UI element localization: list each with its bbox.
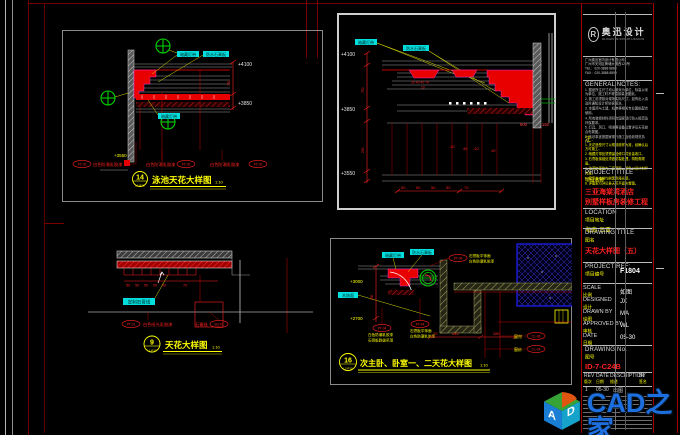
fold-mark: [44, 223, 64, 224]
svg-text:石膏线: 石膏线: [195, 321, 208, 328]
svg-text:白色防潮乳胶漆: 白色防潮乳胶漆: [368, 332, 394, 337]
project-title-line1: 三亚海棠湾酒店: [585, 187, 650, 197]
panel-pool-ceiling-detail: 750 +4100 +3850 +3550 暗藏灯带 防水石膏板 暗藏灯带 PT…: [62, 30, 323, 202]
svg-text:50: 50: [126, 284, 130, 288]
svg-text:SG-01: SG-01: [214, 323, 223, 327]
titleblock: R 奥迅设计 AOXUN INTERIOR DESIGN 广州奥迅室内设计有限公…: [583, 3, 652, 431]
column-yellow-box: [555, 310, 568, 323]
sheet-frame-red: [28, 0, 29, 435]
elevation-4100: +4100: [238, 62, 252, 68]
titleblock-border: [677, 3, 678, 433]
field-drawn-by: DRAWN BY绘图 MA: [583, 309, 652, 321]
svg-text:PT-04: PT-04: [378, 327, 387, 331]
svg-text:白色防潮乳胶漆: 白色防潮乳胶漆: [93, 161, 122, 168]
titleblock-address-section: 广州奥迅室内设计有限公司 广州市天河区黄埔大道西120号 TEL：020-388…: [583, 56, 652, 80]
dim-750: 750: [361, 87, 365, 93]
drawing-title-value: 天花大样图（五）: [585, 246, 650, 256]
elevation-2700: +2700: [350, 316, 363, 321]
address-line: FAX：020-3888 8899: [585, 71, 650, 75]
wall-hatch: [533, 33, 555, 128]
material-label-cyan: 定制石膏线: [123, 275, 168, 305]
finish-callouts: PT-02 白色防潮乳胶漆 白色防潮乳胶漆 PT-02 白色防潮乳胶漆 PT-0…: [73, 142, 267, 168]
general-note: 2. 施工前须核对现场实际尺寸，如有出入请及时通知设计师协调解决。: [585, 97, 650, 106]
svg-text:暗藏灯带: 暗藏灯带: [358, 39, 374, 45]
cn-notes-section: 注: 1. 天花造型尺寸以现场放样为准，经确认后方可施工。 2. 暗藏灯带处须预…: [583, 133, 652, 168]
white-arrow: [158, 272, 164, 283]
svg-text:50: 50: [431, 185, 436, 190]
field-scale: SCALE比例 如图: [583, 285, 652, 297]
svg-text:CL-04: CL-04: [532, 348, 541, 352]
title-scale: 1:10: [480, 363, 489, 368]
svg-text:PT-01: PT-01: [127, 323, 136, 327]
svg-text:PT-02: PT-02: [254, 163, 263, 167]
drawing-title-label-cn: 图名: [585, 236, 650, 243]
drawing-no-section: DRAWING No. 图号 ID-7-C24B: [583, 345, 652, 372]
location-label-cn: 项目地址: [585, 216, 650, 223]
dim-center2: 10: [421, 86, 425, 90]
titleblock-border: [581, 3, 582, 433]
project-title-section: PROJECT TITLE 项目名称 三亚海棠湾酒店 别墅样板房装修工程: [583, 168, 652, 208]
elevation-3550: +3550: [341, 171, 355, 177]
margin-tick: [656, 268, 664, 269]
dim-n1: -10: [449, 144, 456, 149]
project-title-label-cn: 项目名称: [585, 176, 650, 183]
cn-note: 1. 天花造型尺寸以现场放样为准，经确认后方可施工。: [585, 143, 650, 152]
company-name-en: AOXUN INTERIOR DESIGN: [602, 38, 652, 41]
dim-600: 600: [520, 122, 528, 127]
dim-n3: -10: [473, 146, 480, 151]
title-text: 天花大样图: [165, 340, 208, 350]
svg-text:PT-02: PT-02: [78, 163, 87, 167]
svg-text:440: 440: [452, 331, 459, 336]
titleblock-logo-section: R 奥迅设计 AOXUN INTERIOR DESIGN: [583, 14, 652, 56]
top-finish-callout: PT-04 石膏板平饰面 白色防潮乳胶漆: [430, 253, 495, 266]
field-designed: DESIGNED设计 JX: [583, 297, 652, 309]
svg-text:白色哑光乳胶漆: 白色哑光乳胶漆: [143, 321, 172, 328]
company-name: 奥迅设计: [602, 25, 652, 38]
fields-section: SCALE比例 如图 DESIGNED设计 JX DRAWN BY绘图 MA A…: [583, 283, 652, 345]
svg-text:白色防潮乳胶漆: 白色防潮乳胶漆: [469, 259, 495, 264]
cadzj-watermark: A D CAD之家 WWW.CADZJ.COM: [541, 390, 680, 435]
panel-bedroom-ceiling-detail: 暗藏灯带 防水石膏板 木饰面 PT-04 石膏板平饰面 白色防潮乳胶漆 300 …: [330, 238, 572, 385]
svg-text:石膏板跌级吊顶: 石膏板跌级吊顶: [368, 338, 394, 343]
elevation-4100: +4100: [341, 52, 355, 58]
titleblock-border: [653, 3, 654, 433]
elevation-3850: +3850: [341, 107, 355, 113]
project-ref-value: F1804: [620, 268, 640, 275]
dim-150: 150: [542, 122, 550, 127]
svg-text:300: 300: [370, 294, 374, 300]
svg-text:石膏板平饰面: 石膏板平饰面: [469, 253, 491, 258]
cadzj-cube-logo-icon: A D: [541, 390, 583, 432]
svg-text:暗藏灯带: 暗藏灯带: [385, 252, 401, 258]
svg-text:70: 70: [464, 185, 469, 190]
svg-text:PT-04: PT-04: [416, 323, 425, 327]
svg-text:PT-02: PT-02: [182, 163, 191, 167]
sheet-frame-red: [28, 3, 652, 4]
sheet-frame-red: [44, 3, 45, 433]
project-ref-label-cn: 项目编号: [585, 270, 650, 277]
rev-col-header: REV 版次: [584, 373, 595, 387]
general-note: 1. 图纸所注尺寸均以毫米为单位，标高以米为单位，施工时不得直接量度图纸。: [585, 88, 650, 97]
finish-callout-group2: PT-04 石膏板平饰面 白色防潮乳胶漆: [410, 298, 436, 339]
dim-chain-bottom: 50 50 50 50 70: [395, 185, 504, 193]
viewport-line: [615, 12, 616, 430]
cn-note: 3. 石膏板接缝处须做防裂处理，阴阳角顺直。: [585, 157, 650, 166]
dim-n2: 40: [463, 146, 468, 151]
svg-text:PT-04: PT-04: [454, 257, 463, 261]
svg-text:白色防潮乳胶漆: 白色防潮乳胶漆: [146, 161, 175, 168]
dim-chain: 50 50 50 50 50 70: [124, 281, 218, 288]
rev-col-header: BY 签名: [639, 373, 650, 387]
detail-ref: L1-P10: [147, 349, 156, 353]
svg-text:暗藏灯带: 暗藏灯带: [180, 51, 196, 57]
detail-ref: L1-P10: [135, 184, 144, 188]
fabric-panel-hatch: [517, 244, 572, 306]
finish-callout-group1: PT-04 白色防潮乳胶漆 石膏板跌级吊顶: [368, 308, 394, 343]
general-note: 4. 所有装修材料须符合国家现行防火规范及环保要求。: [585, 116, 650, 125]
svg-text:防水石膏板: 防水石膏板: [406, 45, 426, 51]
sheet-border-line: [12, 0, 13, 435]
viewport-line: [625, 12, 626, 430]
svg-text:防水石膏板: 防水石膏板: [206, 51, 226, 57]
svg-text:50: 50: [135, 284, 139, 288]
company-logo-icon: R: [588, 27, 599, 42]
grid-red-verticals: [392, 123, 541, 183]
svg-text:定制石膏线: 定制石膏线: [128, 298, 151, 305]
dim-chain-left: [364, 51, 370, 183]
elevation-3000: +3000: [350, 279, 363, 284]
svg-text:防水石膏板: 防水石膏板: [412, 249, 432, 255]
finish-callouts: PT-01 白色哑光乳胶漆 石膏线 SG-01: [122, 312, 228, 328]
svg-text:木饰面: 木饰面: [342, 292, 354, 298]
dentil-moulding: [124, 268, 196, 275]
slab-hatch: [117, 251, 250, 275]
detail-number: 9: [150, 340, 154, 347]
cn-notes-heading: 注:: [585, 134, 650, 143]
rev-col-header: DATE 日期: [596, 373, 609, 387]
svg-text:70: 70: [433, 331, 438, 336]
title-scale: 1:10: [212, 345, 221, 350]
title-text: 次主卧、卧室一、二天花大样图: [360, 358, 472, 368]
dim-n4: ±0: [491, 148, 496, 153]
dim-chain-left: 300: [370, 264, 379, 322]
cn-note: 2. 暗藏灯带处须预留检修口并妥善收口。: [585, 152, 650, 156]
general-notes-section: GENERAL NOTES: 1. 图纸所注尺寸均以毫米为单位，标高以米为单位，…: [583, 80, 652, 133]
svg-text:石膏板平饰面: 石膏板平饰面: [410, 328, 432, 333]
svg-text:70: 70: [183, 284, 187, 288]
margin-tick: [656, 93, 664, 94]
detail-number: 16: [344, 358, 352, 365]
panel-ceiling-detail-9: 50 50 50 50 50 70 定制石膏线 PT-01 白色哑光乳胶漆 石膏…: [88, 245, 323, 365]
drawing-no-value: ID-7-C24B: [585, 362, 650, 371]
title-text: 泳池天花大样图: [152, 175, 212, 185]
dim-center: 20 40 40 70: [411, 81, 429, 85]
location-section: LOCATION 项目地址 海南·三亚: [583, 208, 652, 228]
drawing-title-section: DRAWING TITLE 图名 天花大样图（五）: [583, 228, 652, 262]
drawing-title-14: 14 L1-P10 泳池天花大样图 1:10: [133, 172, 227, 190]
general-note: 3. 本图须与土建、机电等相关专业图纸配合使用。: [585, 107, 650, 116]
svg-text:50: 50: [153, 284, 157, 288]
panel-section-detail: 暗藏灯带 防水石膏板: [337, 13, 556, 210]
svg-text:50: 50: [416, 185, 421, 190]
field-date: DATE日期 05-30: [583, 333, 652, 345]
svg-text:50: 50: [144, 284, 148, 288]
watermark-brand: CAD之家: [587, 390, 680, 435]
detail-number: 14: [136, 175, 144, 182]
light-fixture-marks: [449, 102, 487, 105]
field-approved-by: APPROVED BY审核 WL: [583, 321, 652, 333]
drawing-title-16: 16 L2-P10 次主卧、卧室一、二天花大样图 1:10: [340, 354, 491, 373]
sheet-border-line: [5, 0, 6, 435]
svg-text:白色防潮乳胶漆: 白色防潮乳胶漆: [210, 161, 239, 168]
elevation-3850: +3850: [238, 101, 252, 107]
svg-text:50: 50: [446, 185, 451, 190]
svg-text:CL-06: CL-06: [532, 335, 541, 339]
svg-text:窗帘: 窗帘: [514, 333, 522, 339]
svg-text:50: 50: [401, 185, 406, 190]
project-title-line2: 别墅样板房装修工程: [585, 197, 650, 207]
svg-text:280: 280: [493, 331, 500, 336]
project-ref-section: PROJECT REF: 项目编号 F1804: [583, 262, 652, 283]
detail-bubble-icon: [420, 270, 436, 286]
svg-text:暗藏灯带: 暗藏灯带: [161, 113, 177, 119]
detail-ref: L2-P10: [343, 367, 352, 371]
drawing-title-9: 9 L1-P10 天花大样图 1:10: [144, 336, 222, 354]
wall-hatch: [128, 50, 134, 162]
cad-sheet-canvas: 750 +4100 +3850 +3550 暗藏灯带 防水石膏板 暗藏灯带 PT…: [0, 0, 680, 435]
elevation-3550: +3550: [114, 153, 127, 158]
dim-750: 750: [227, 80, 231, 86]
drawing-no-label-cn: 图号: [585, 353, 650, 360]
svg-text:窗纱: 窗纱: [514, 346, 522, 352]
dim-250: 250: [361, 147, 365, 153]
title-scale: 1:10: [215, 180, 224, 185]
